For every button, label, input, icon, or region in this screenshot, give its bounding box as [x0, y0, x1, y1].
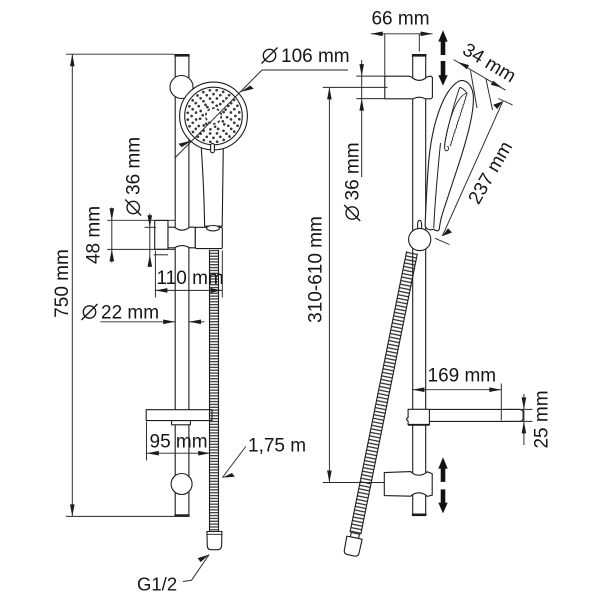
svg-text:106 mm: 106 mm: [281, 46, 350, 67]
svg-text:95 mm: 95 mm: [150, 432, 208, 453]
svg-text:310-610 mm: 310-610 mm: [306, 216, 327, 323]
svg-text:48 mm: 48 mm: [84, 206, 105, 264]
svg-text:750 mm: 750 mm: [52, 249, 73, 318]
svg-text:25 mm: 25 mm: [532, 390, 553, 448]
svg-text:22 mm: 22 mm: [101, 303, 159, 324]
svg-text:110 mm: 110 mm: [157, 268, 224, 289]
svg-text:169 mm: 169 mm: [428, 366, 497, 387]
svg-text:1,75 m: 1,75 m: [248, 436, 306, 457]
svg-text:66 mm: 66 mm: [371, 8, 429, 29]
svg-text:36 mm: 36 mm: [343, 142, 364, 200]
svg-text:G1/2: G1/2: [137, 574, 177, 595]
svg-text:36 mm: 36 mm: [124, 137, 145, 195]
